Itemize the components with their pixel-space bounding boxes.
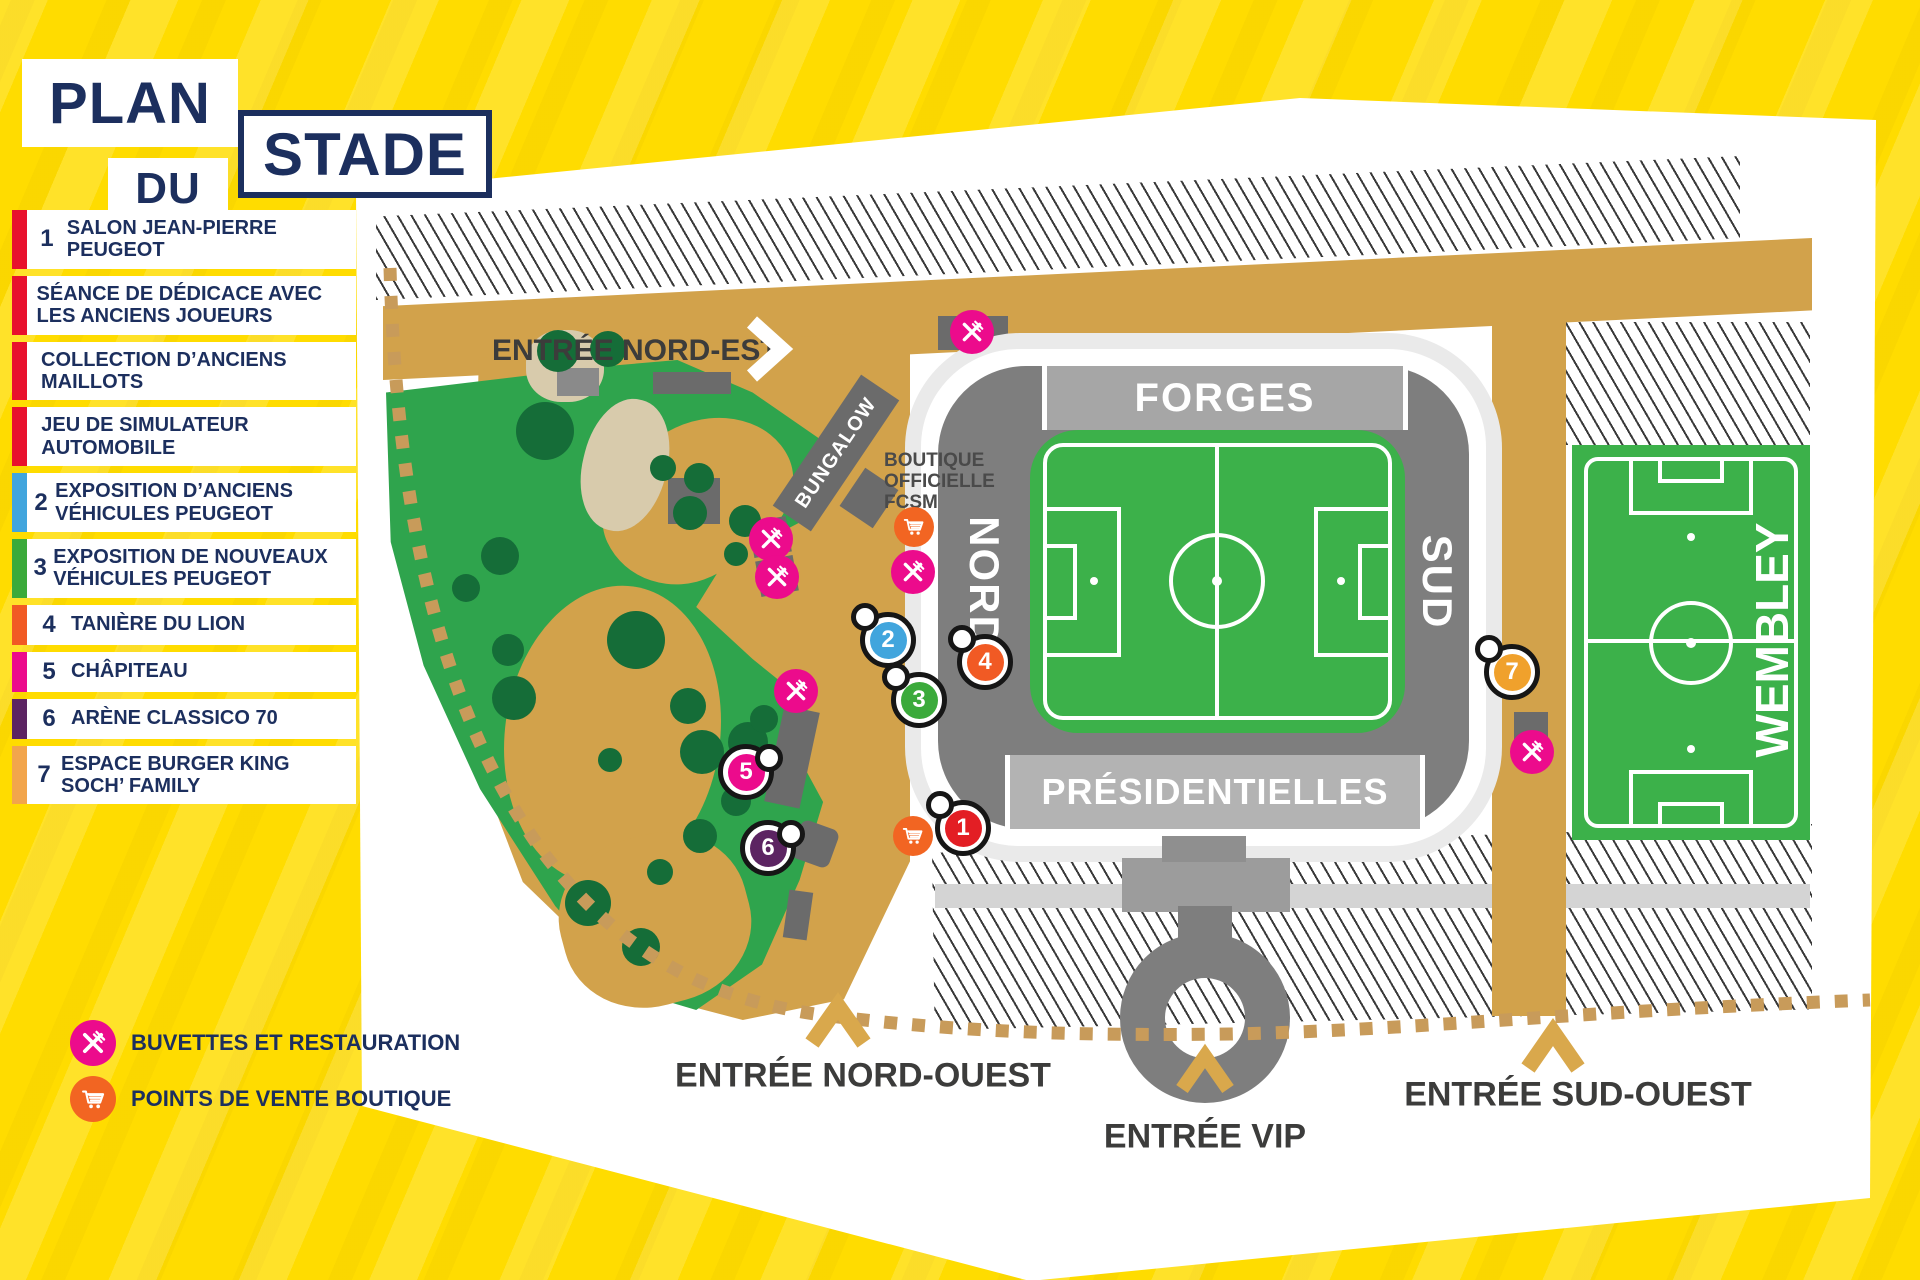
legend-item-maillots: COLLECTION D’ANCIENS MAILLOTS — [12, 342, 356, 401]
legend-item-label: SÉANCE DE DÉDICACE AVEC LES ANCIENS JOUE… — [37, 276, 356, 335]
title-plan: PLAN — [22, 59, 238, 147]
arrow-vip-icon — [1182, 1056, 1228, 1089]
legend-color-bar — [12, 699, 27, 739]
shop-icon — [70, 1076, 116, 1122]
dotted-perimeter-path — [390, 268, 1870, 1034]
food-icon — [774, 669, 818, 713]
map-marker-3: 3 — [891, 672, 947, 728]
map-marker-5: 5 — [718, 744, 774, 800]
map-marker-1: 1 — [935, 800, 991, 856]
legend-color-bar — [12, 652, 27, 692]
legend-item-dedicace: SÉANCE DE DÉDICACE AVEC LES ANCIENS JOUE… — [12, 276, 356, 335]
shop-icon — [893, 816, 933, 856]
food-icon — [891, 550, 935, 594]
chevron-ne-icon — [752, 322, 782, 376]
legend-item-number: 7 — [27, 761, 61, 789]
legend-item-label: EXPOSITION D’ANCIENS VÉHICULES PEUGEOT — [55, 473, 356, 532]
legend-item-label: TANIÈRE DU LION — [71, 606, 251, 642]
title-stade: STADE — [238, 110, 492, 198]
legend-item-label: ARÈNE CLASSICO 70 — [71, 700, 284, 736]
legend-color-bar — [12, 746, 27, 805]
map-marker-2: 2 — [860, 612, 916, 668]
legend-item-5: 5 CHÂPITEAU — [12, 652, 356, 692]
key-shop: POINTS DE VENTE BOUTIQUE — [70, 1076, 460, 1122]
legend-item-number: 4 — [27, 611, 71, 639]
legend-color-bar — [12, 342, 27, 401]
map-key: BUVETTES ET RESTAURATION POINTS DE VENTE… — [70, 1020, 460, 1132]
food-icon — [755, 555, 799, 599]
legend-item-2: 2 EXPOSITION D’ANCIENS VÉHICULES PEUGEOT — [12, 473, 356, 532]
legend-color-bar — [12, 539, 27, 598]
legend-color-bar — [12, 605, 27, 645]
legend-list: 1 SALON JEAN-PIERRE PEUGEOT SÉANCE DE DÉ… — [12, 210, 356, 811]
food-icon — [749, 517, 793, 561]
legend-item-label: JEU DE SIMULATEUR AUTOMOBILE — [41, 407, 356, 466]
map-marker-7: 7 — [1484, 644, 1540, 700]
food-icon — [950, 310, 994, 354]
legend-color-bar — [12, 276, 27, 335]
shop-icon — [894, 507, 934, 547]
legend-item-simulateur: JEU DE SIMULATEUR AUTOMOBILE — [12, 407, 356, 466]
legend-item-3: 3 EXPOSITION DE NOUVEAUX VÉHICULES PEUGE… — [12, 539, 356, 598]
legend-item-number: 3 — [27, 554, 53, 582]
legend-item-label: ESPACE BURGER KING SOCH’ FAMILY — [61, 746, 356, 805]
key-food-label: BUVETTES ET RESTAURATION — [131, 1030, 460, 1056]
key-shop-label: POINTS DE VENTE BOUTIQUE — [131, 1086, 451, 1112]
legend-item-label: COLLECTION D’ANCIENS MAILLOTS — [41, 342, 356, 401]
legend-item-number: 5 — [27, 658, 71, 686]
legend-item-label: EXPOSITION DE NOUVEAUX VÉHICULES PEUGEOT — [53, 539, 356, 598]
legend-color-bar — [12, 473, 27, 532]
map-marker-4: 4 — [957, 634, 1013, 690]
map-marker-6: 6 — [740, 820, 796, 876]
legend-item-label: CHÂPITEAU — [71, 653, 194, 689]
food-icon — [1510, 730, 1554, 774]
legend-item-7: 7 ESPACE BURGER KING SOCH’ FAMILY — [12, 746, 356, 805]
food-icon — [70, 1020, 116, 1066]
legend-item-number: 1 — [27, 225, 67, 253]
legend-item-label: SALON JEAN-PIERRE PEUGEOT — [67, 210, 356, 269]
legend-color-bar — [12, 210, 27, 269]
arrow-nw-icon — [812, 1006, 864, 1043]
legend-item-4: 4 TANIÈRE DU LION — [12, 605, 356, 645]
legend-item-1: 1 SALON JEAN-PIERRE PEUGEOT — [12, 210, 356, 269]
arrow-sw-icon — [1528, 1032, 1578, 1068]
legend-item-number: 6 — [27, 705, 71, 733]
legend-color-bar — [12, 407, 27, 466]
legend-item-6: 6 ARÈNE CLASSICO 70 — [12, 699, 356, 739]
legend-item-number: 2 — [27, 489, 55, 517]
key-food: BUVETTES ET RESTAURATION — [70, 1020, 460, 1066]
